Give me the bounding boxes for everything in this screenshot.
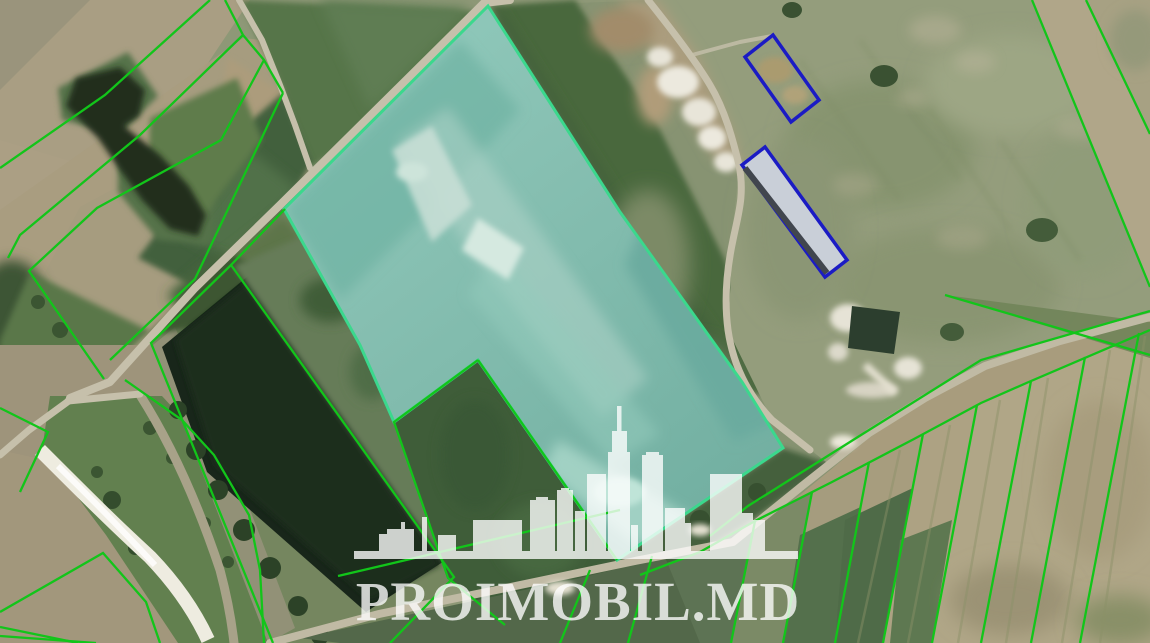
svg-text:PROIMOBIL.MD: PROIMOBIL.MD	[356, 571, 800, 632]
